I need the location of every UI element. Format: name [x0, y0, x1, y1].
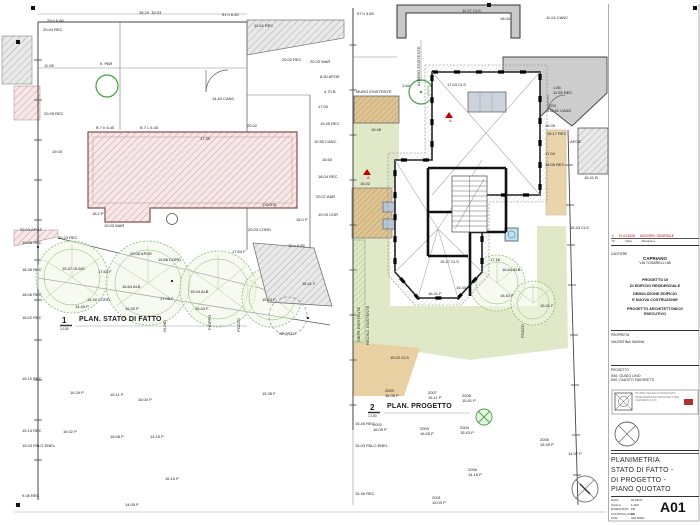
staircase: [452, 176, 487, 232]
sheet-number: A01: [660, 499, 686, 515]
site-block: CANTIERE CAPRIANO VIA TOSARELLI 88: [611, 252, 699, 265]
revision-date: 21.03.2008: [619, 234, 635, 238]
plan1-title: PLAN. STATO DI FATTO: [79, 316, 162, 323]
revision-desc: AGGIORN. GENERALE: [640, 234, 674, 238]
terrace: [468, 92, 506, 112]
well-symbol: [167, 214, 178, 225]
planted-tree-symbol: [476, 409, 492, 425]
owner-label: PROPRIETA': [611, 333, 699, 337]
revision-block: 1 21.03.2008 AGGIORN. GENERALE N° Data R…: [611, 234, 699, 246]
boundary-wedge-pink: [14, 230, 58, 246]
demolition-building: [88, 132, 297, 222]
designer-2: ING. FAUSTO FAVORETTI: [611, 378, 699, 382]
existing-wall-2: [352, 188, 392, 238]
site-address: VIA TOSARELLI 88: [611, 261, 699, 265]
garage-hatch: [578, 128, 608, 174]
plan2-number: 2: [370, 403, 374, 412]
drawing-sheet: 29 h 6.8028.29 30.0391 h 6.5020.04 REC11…: [0, 0, 700, 525]
rule-designer: [611, 365, 699, 366]
designer-label: PROGETTO: [611, 368, 699, 372]
paving-bottom: [353, 342, 420, 396]
plan2-scale: 1:100: [368, 414, 377, 418]
tree-marker-circle: [96, 75, 118, 97]
project-description: PROGETTO DI DI EDIFICIO RESIDENZIALE DEM…: [611, 278, 699, 318]
rule-info: [611, 496, 699, 497]
owner-block: PROPRIETA' VALENTINA SAVINA: [611, 333, 699, 344]
plan2-title: PLAN. PROGETTO: [387, 403, 452, 410]
titleblock-compass: [615, 422, 639, 446]
revision-header: N° Data Revisione: [611, 239, 699, 243]
neighbour-building-top: [397, 5, 520, 38]
rule-title-2: [611, 453, 699, 454]
rule-title-1: [611, 450, 699, 451]
drawing-title: PLANIMETRIA STATO DI FATTO - DI PROGETTO…: [611, 456, 699, 495]
plan1-number: 1: [62, 316, 66, 325]
plan1-scale: 1:100: [60, 327, 69, 331]
paving-right: [546, 130, 566, 215]
info-table: DATA04.08.07 SCALA1:100 DISEGNATOFB CONT…: [611, 498, 651, 521]
existing-wall: [354, 96, 399, 123]
neighbour-hatch-pink: [14, 86, 40, 120]
designer-block: PROGETTO ING. GUIDO LINO ING. FAUSTO FAV…: [611, 368, 699, 382]
road-strip-hatch: [247, 20, 344, 55]
owner-name: VALENTINA SAVINA: [611, 340, 699, 344]
existing-tree-center: [420, 91, 422, 93]
plan-graphics: [0, 0, 700, 525]
hedge-left: [353, 240, 365, 342]
firm-text: STUDIO TECNICO ASSOCIATO INGEGNERIA ED A…: [635, 392, 679, 403]
north-compass: [572, 476, 598, 502]
left-plan-drawing: [2, 14, 344, 500]
right-plan-drawing: [350, 5, 609, 505]
gate-symbol: [206, 70, 228, 92]
revision-number: 1: [612, 234, 614, 238]
rule-owner: [611, 330, 699, 331]
